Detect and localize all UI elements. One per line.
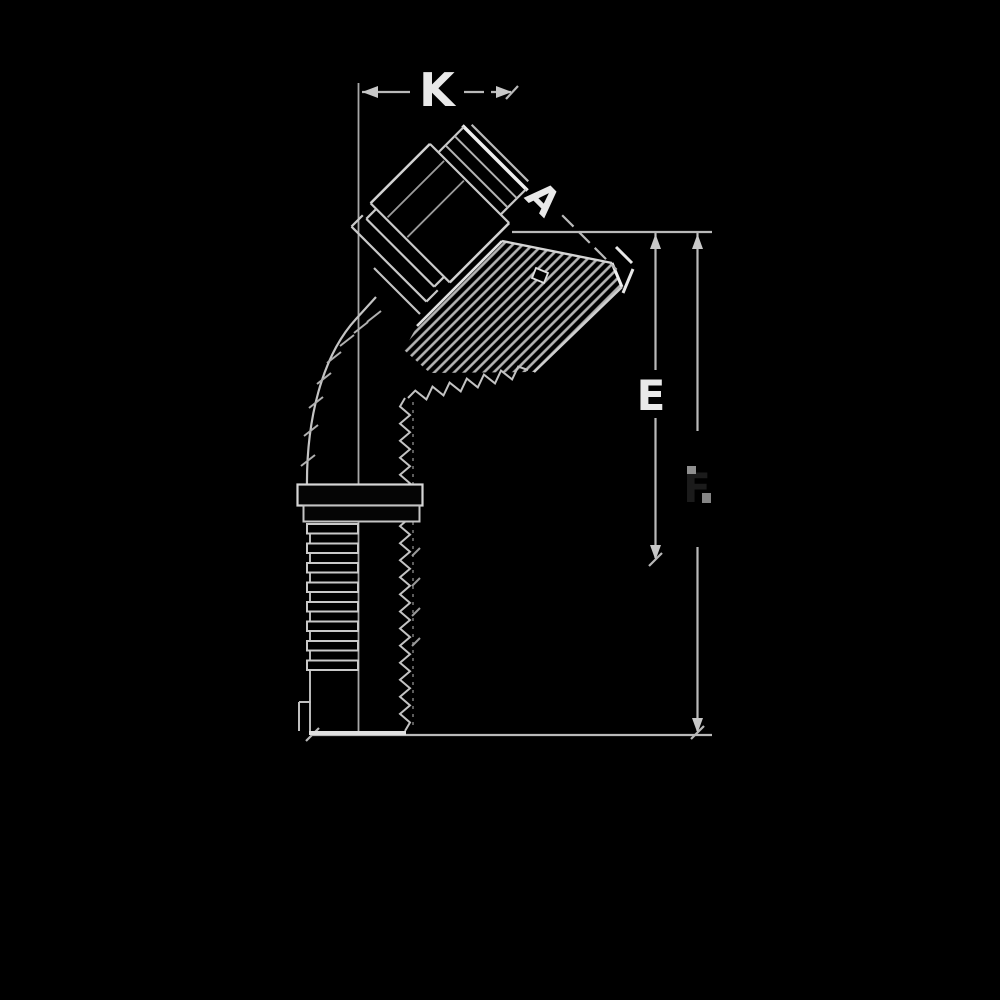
crimp-collar <box>298 485 423 522</box>
drawing-canvas: K E F <box>0 0 1000 1000</box>
f-label-fragment <box>687 466 696 474</box>
dim-label-e: E <box>637 371 666 420</box>
fitting-technical-drawing: K E F <box>0 0 1000 1000</box>
dim-label-k: K <box>419 63 457 117</box>
background <box>0 0 1000 1000</box>
f-label-fragment <box>702 493 711 503</box>
